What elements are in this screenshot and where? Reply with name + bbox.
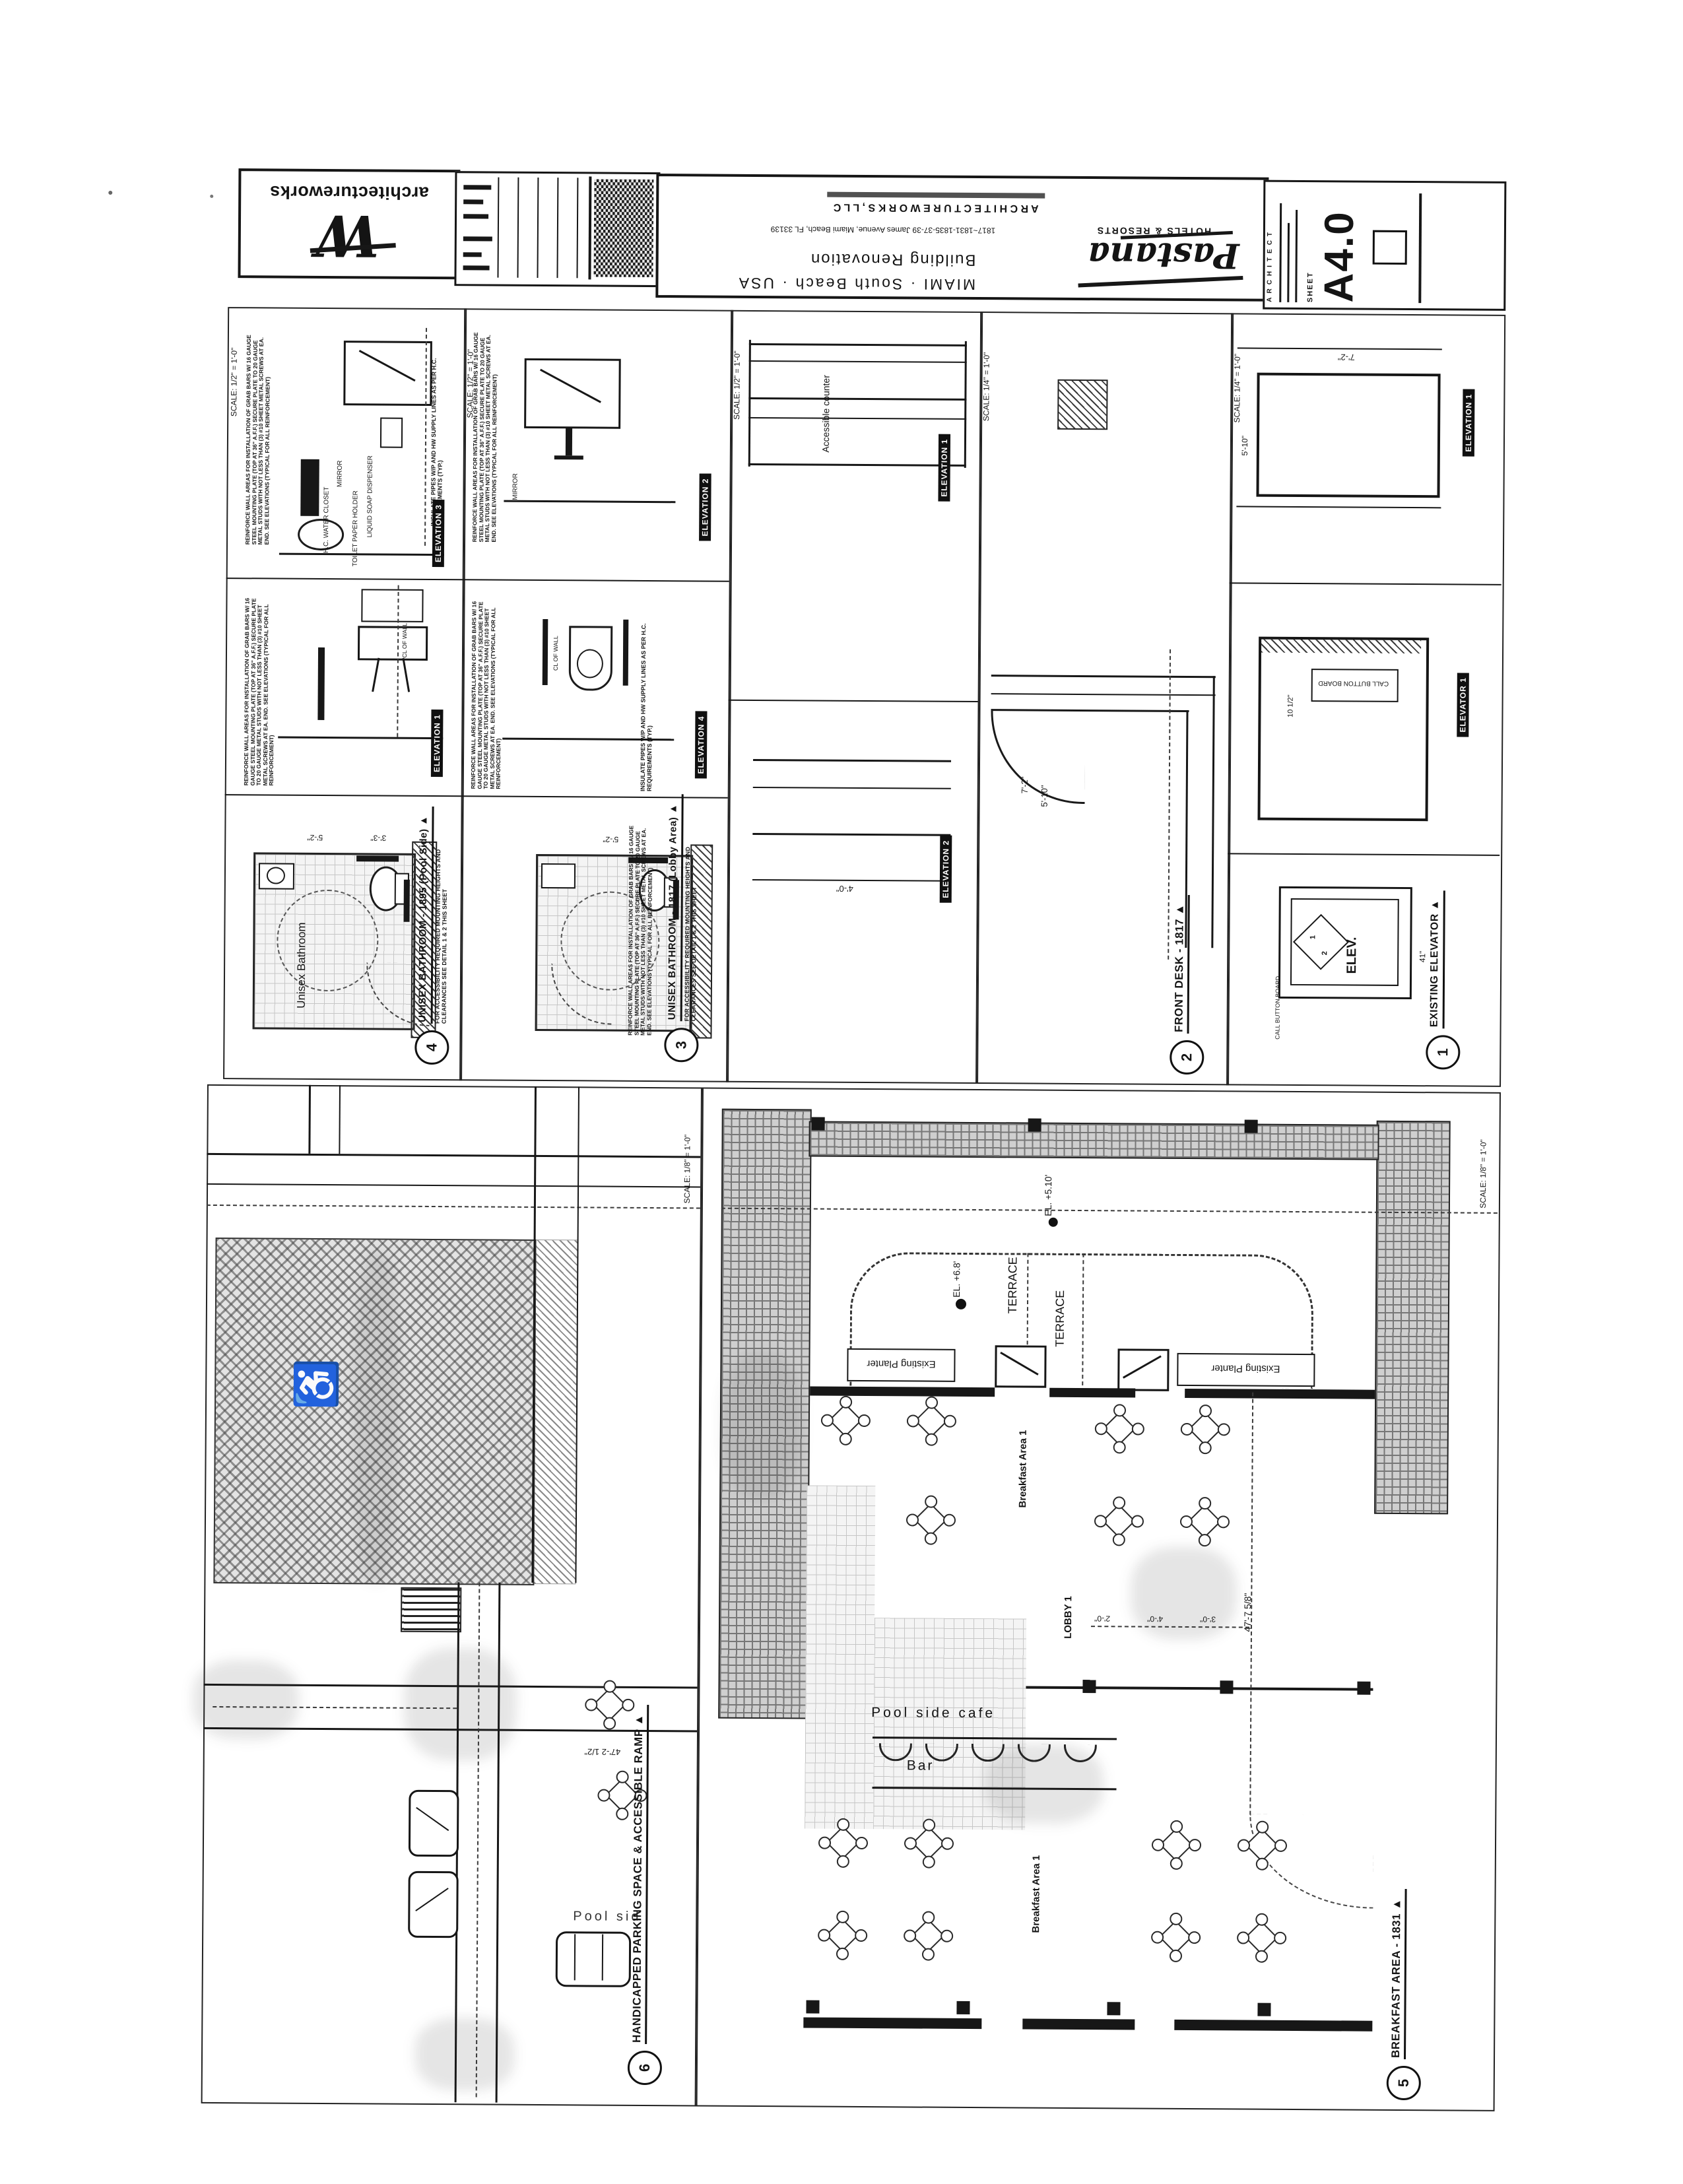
scan-smudge [415,2018,515,2091]
cl-label: CL OF WALL [401,592,414,658]
room-name: Unisex Bathroom [295,890,315,1009]
chair-icon [603,1680,616,1693]
breakfast-area-label: Breakfast Area 1 [1018,1419,1036,1507]
elevator-tag: ELEVATOR 1 [1457,657,1477,737]
detail-title-2: 2 FRONT DESK - 1817 ▲ [1170,921,1216,1075]
dining-table-symbol [1239,1915,1282,1958]
exterior-wall [1174,2020,1372,2032]
dining-table-symbol [1154,1823,1197,1865]
dining-table-symbol [824,1399,866,1441]
call-board-note: CALL BUTTON BOARD [1274,927,1288,1040]
detail-title: EXISTING ELEVATOR ▲ [1426,890,1445,1029]
soap-dispenser [380,417,403,447]
detail-number: 3 [664,1028,698,1062]
tile-area [805,1485,875,1829]
revision-rule [576,178,578,278]
column [1082,1680,1096,1693]
dim-label: 2'-0" [1086,1614,1119,1622]
elevation-tag: ELEVATION 1 [938,429,958,502]
revision-header-mark [463,214,488,218]
revision-rule [588,176,591,279]
spot-elevation-marker [956,1299,966,1309]
chair-icon [616,1808,628,1820]
dim-label: 5'-2" [594,834,627,843]
wc-tank [300,459,319,516]
column [806,2000,819,2013]
tp-holder-label: TOILET PAPER HOLDER [352,474,366,566]
detail-number: 1 [1426,1035,1460,1069]
signature-line [1287,223,1290,302]
mirror-label: MIRROR [337,421,350,487]
elevator-cab-number: 1 [1309,926,1319,939]
sheet-number: A4.0 [1316,183,1363,302]
sill-wall [810,1387,995,1397]
terrace-label: TERRACE [1006,1240,1024,1313]
logo-wordmark: architectureworks [253,182,445,202]
signature-line [1279,203,1282,302]
lobby-label: LOBBY 1 [1063,1581,1081,1639]
turning-circle [277,890,379,992]
wc-bowl [298,519,344,550]
column [1245,1120,1258,1133]
dining-table-symbol [821,1821,863,1863]
exterior-wall [1022,2018,1135,2030]
scanned-drawing-sheet: architectureworks W A R C H I T E C T U … [0,0,1683,2184]
fixture-bowl [577,649,603,678]
accessible-counter-label: Accessible counter [821,341,844,453]
revision-header-mark [463,236,492,241]
dim-label: 5'-10" [1040,728,1057,807]
column-hatch-square [1057,380,1107,430]
detail-number: 4 [414,1030,449,1065]
bar-label: Bar [907,1758,935,1773]
scale-note: SCALE: 1/2" = 1'-0" [733,314,748,420]
spot-elevation-marker [1049,1218,1058,1227]
detail-column-c [726,310,983,1084]
scan-smudge [984,1744,1104,1824]
grab-bar [543,619,548,685]
insulate-note: INSULATE PIPES W/P AND HW SUPPLY LINES A… [640,607,669,791]
project-address: 1817~1831-1835-37-39 James Avenue, Miami… [698,224,1068,235]
chair-icon [603,1717,616,1730]
detail-title-6: 6 HANDICAPPED PARKING SPACE & ACCESSIBLE… [628,1734,678,2085]
lavatory [541,863,576,888]
ramp-steps [401,1587,461,1633]
reinforce-note: REINFORCE WALL AREAS FOR INSTALLATION OF… [627,818,664,1036]
project-title: Building Renovation [781,249,1005,268]
ramp-planter [1117,1348,1169,1391]
dining-table-symbol [587,1682,630,1725]
detail-title: UNISEX BATHROOM - 1817 (Lobby Area) ▲ [665,795,684,1022]
chair-icon [616,1771,629,1783]
seal-square [1373,230,1407,265]
detail-title-5: 5 BREAKFAST AREA - 1831 ▲ [1387,1902,1437,2100]
existing-planter-label: Existing Planter [852,1358,950,1369]
wheelchair-icon: ♿ [294,1357,340,1410]
dim-label: 3'-3" [362,833,395,842]
sill-wall [1185,1389,1375,1399]
front-desk-elevation [1256,373,1440,498]
street-line [308,1085,311,1154]
scan-smudge [404,1648,517,1761]
call-button-board: CALL BUTTON BOARD [1311,669,1399,702]
scale-note: SCALE: 1/2" = 1'-0" [230,311,245,416]
dim-label: 4'-0" [825,884,865,894]
planter [408,1871,459,1938]
parked-car [556,1931,632,1987]
scan-speck [210,195,213,198]
scan-speck [108,191,112,195]
brand-script: Pastana [1081,236,1246,275]
reinforce-note: REINFORCE WALL AREAS FOR INSTALLATION OF… [244,594,283,785]
column [956,2001,970,2014]
existing-planter-label: Existing Planter [1182,1362,1309,1374]
signature-line [1295,210,1298,302]
dining-table-symbol [907,1821,949,1863]
column [1107,2002,1120,2015]
elevator-cab-number: 2 [1321,942,1331,955]
elevation-tag: ELEVATION 4 [695,699,715,778]
grab-bar [317,647,325,720]
lavatory-bowl [267,867,285,884]
exterior-wall [803,2017,981,2029]
car-window-line [574,1934,576,1980]
spot-elevation: EL. +6.8' [952,1234,967,1298]
mirror-elevation [343,341,432,406]
column [1220,1680,1233,1694]
sheet-label: SHEET [1306,183,1315,302]
detail-title-1: 1 EXISTING ELEVATOR ▲ [1426,916,1472,1069]
dining-table-symbol [1097,1499,1139,1541]
scan-smudge [352,1251,400,1581]
scan-smudge [193,1660,299,1740]
call-button-board-label: CALL BUTTON BOARD [1315,679,1392,687]
elevation-tag: ELEVATION 1 [1463,378,1483,457]
elevation-tag: ELEVATION 2 [940,830,960,903]
firm-name: A R C H I T E C T U R E W O R K S , L L … [771,201,1101,215]
dining-table-symbol [1183,1407,1226,1449]
dining-table-symbol [906,1913,948,1956]
scan-smudge [1131,1546,1237,1639]
tiled-walkway-right [1374,1121,1451,1515]
detail-title-3: 3 UNISEX BATHROOM - 1817 (Lobby Area) ▲ … [664,806,721,1063]
elevation-tag: ELEVATION 3 [432,488,453,567]
architect-label: ARCHITECT [1266,183,1274,302]
wc-label: H.C. WATER CLOSET [323,467,337,553]
detail-title-4: 4 UNISEX BATHROOM - 1895 (Pool Side) ▲ F… [414,809,471,1065]
breakfast-area-label: Breakfast Area 1 [1031,1845,1049,1933]
mirror-elevation [361,589,423,622]
cafe-label: Pool side cafe [871,1705,995,1721]
detail-title: UNISEX BATHROOM - 1895 (Pool Side) ▲ [415,806,434,1024]
lavatory-elevation [358,626,428,661]
ramp-planter [995,1345,1046,1387]
mirror-elevation [524,358,621,429]
sheet-stamp-box: ARCHITECT SHEET A4.0 [1263,180,1506,311]
dining-table-symbol [1240,1823,1282,1865]
detail-note: FOR ACCESSIBILITY REQUIRED MOUNTING HEIG… [432,812,448,1024]
dining-table-symbol [909,1498,951,1540]
reinforce-note: REINFORCE WALL AREAS FOR INSTALLATION OF… [245,327,284,545]
revision-table [454,171,660,287]
wheelchair-symbol: ♿ [294,1357,346,1410]
chair-icon [597,1789,610,1802]
detail-title: BREAKFAST AREA - 1831 ▲ [1387,1889,1407,2059]
scan-smudge [722,1353,802,1499]
detail-title: HANDICAPPED PARKING SPACE & ACCESSIBLE R… [628,1705,649,2044]
revision-rule [517,178,519,278]
cl-label: CL OF WALL [552,605,565,671]
chair-icon [585,1698,597,1711]
detail-title: FRONT DESK - 1817 ▲ [1170,894,1190,1034]
existing-planter: Existing Planter [847,1348,955,1382]
detail-number: 5 [1387,2066,1421,2100]
reinforce-note: REINFORCE WALL AREAS FOR INSTALLATION OF… [471,597,510,789]
detail-number: 6 [628,2051,662,2085]
terrace-label: TERRACE [1053,1273,1071,1347]
revision-header-mark [463,185,491,189]
dim-label: 7'-2" [1323,352,1369,362]
logo-w-mark: W [320,203,380,266]
elevator-elevation [1257,637,1429,822]
grab-bar [623,620,629,686]
dim-label: 7'-2" [1020,721,1037,793]
mirror-label: MIRROR [511,434,525,500]
column [1257,2003,1270,2016]
grab-bar [356,855,399,861]
elevation-tag: ELEVATION 1 [431,698,451,777]
brand-underline [1078,276,1243,288]
column [1028,1119,1041,1132]
dining-table-symbol [1154,1915,1196,1958]
soap-label: LIQUID SOAP DISPENSER [366,438,380,537]
revision-rule [497,178,499,278]
tiled-runner-top [808,1121,1379,1160]
detail-number: 2 [1170,1040,1204,1075]
revision-header-mark [463,265,490,270]
detail-note: FOR ACCESSIBILITY REQUIRED MOUNTING HEIG… [682,810,698,1021]
revision-rule [537,178,539,278]
dim-label: 5'-2" [298,833,331,842]
reinforce-note: REINFORCE WALL AREAS FOR INSTALLATION OF… [472,324,511,542]
project-info-box: A R C H I T E C T U R E W O R K S , L L … [655,174,1269,302]
elevator-label: ELEV. [1344,918,1365,974]
project-location: MIAMI · South Beach · USA [691,274,1021,292]
revision-rule [556,178,558,278]
dim-label: 10 1/2" [1286,671,1301,717]
mirror-base [554,455,583,459]
dim-label: 5'-10" [1241,396,1256,455]
fine-print-smudge [827,192,1045,199]
elevation-tag: ELEVATION 2 [699,461,719,541]
planter [409,1790,459,1857]
crosswalk-hatch [533,1240,577,1584]
mirror-stand [566,428,572,455]
sill-wall [1049,1388,1135,1398]
dining-table-symbol [1183,1500,1225,1542]
revision-header-mark [463,199,483,204]
column [812,1117,825,1131]
logo-box: architectureworks W [238,168,460,279]
existing-planter: Existing Planter [1177,1353,1315,1387]
dining-table-symbol [1098,1406,1140,1449]
column [1357,1682,1370,1695]
stamp-rule [1418,193,1422,303]
car-window-line [602,1935,603,1981]
seal-stamp-noise [593,179,653,277]
dining-table-symbol [909,1399,952,1441]
revision-header-mark [463,252,482,257]
door-header-hatch [1261,640,1421,653]
dining-table-symbol [820,1913,863,1956]
grab-bar [404,880,410,922]
spot-elevation: EL. +5.10' [1043,1148,1059,1216]
scale-note: SCALE: 1/4" = 1'-0" [982,315,997,421]
